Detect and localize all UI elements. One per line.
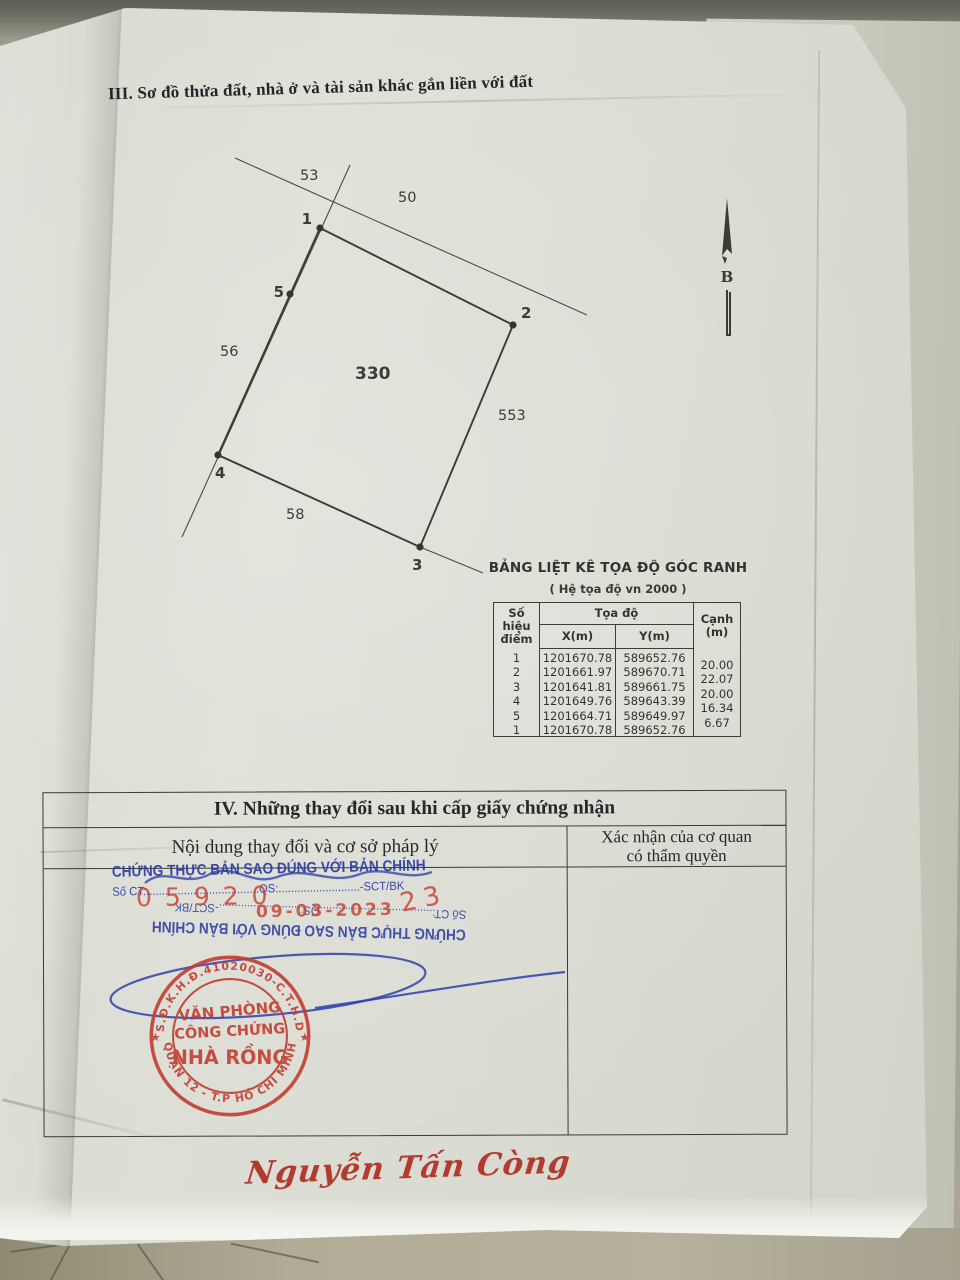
section4-col-right-header: Xác nhận của cơ quan có thẩm quyền [568,826,786,868]
notary-signature: Nguyễn Tấn Còng [244,1144,572,1191]
section4-col-right-line2: có thẩm quyền [627,846,727,865]
plot-diagram: 1 2 3 4 5 53 50 56 58 553 330 [100,140,620,610]
point-label-2: 2 [521,304,531,322]
stamp-center-line3: NHÀ RỒNG [172,1043,288,1069]
coord-table: Số hiệu điểm Tọa độ Cạnh (m) X(m) Y(m) 1… [493,602,741,737]
y-value: 589649.97 [616,709,693,723]
y-value: 589670.71 [616,665,693,679]
corner-point-3 [416,543,423,550]
edge-value: 22.07 [694,672,740,686]
x-value: 1201670.78 [540,723,615,737]
boundary-line-extended [182,165,350,537]
stamp-star-left: ★ [150,1030,160,1044]
section4-body-right [568,867,787,1135]
x-value: 1201661.97 [540,665,615,679]
north-arrow-icon: B [698,192,758,342]
x-value: 1201641.81 [540,680,615,694]
col-header-x: X(m) [540,625,616,649]
point-label-5: 5 [274,283,284,301]
corner-point-4 [214,451,221,458]
stamp-star-right: ★ [299,1030,309,1044]
col-header-point-line1: Số hiệu [494,607,539,633]
body-edge-values: 20.00 22.07 20.00 16.34 6.67 [694,649,740,737]
parcel-number: 330 [355,364,391,384]
point-id: 2 [494,665,539,679]
edge3-extension [420,547,483,573]
x-value: 1201670.78 [540,651,615,665]
section4-col-right-line1: Xác nhận của cơ quan [601,827,752,847]
point-id: 1 [494,651,539,665]
edge-value: 20.00 [694,658,740,672]
point-id: 3 [494,680,539,694]
handwriting-scribble [140,858,440,898]
y-value: 589643.39 [616,694,693,708]
point-id: 5 [494,709,539,723]
photo-of-land-certificate: III. Sơ đồ thửa đất, nhà ở và tài sản kh… [0,0,960,1280]
label-553: 553 [498,408,526,424]
col-header-coord: Tọa độ [540,603,694,625]
edge-value: 16.34 [694,701,740,715]
notary-round-stamp: S.Đ.K.H.Đ.41020030-C.T.H.D QUẬN 12 - T.P… [142,948,318,1124]
edge-value: 20.00 [694,687,740,701]
body-point-ids: 1 2 3 4 5 1 [494,649,540,737]
paper-crease-right [810,50,820,1230]
col-header-edge-line2: (m) [706,626,729,639]
col-header-edge: Cạnh (m) [694,603,740,649]
point-id: 4 [494,694,539,708]
coord-table-title: BẢNG LIỆT KÊ TỌA ĐỘ GÓC RANH [480,560,756,576]
y-value: 589661.75 [616,680,693,694]
label-50: 50 [398,190,416,206]
col-header-point-line2: điểm [501,633,533,646]
corner-point-1 [316,224,323,231]
point-label-4: 4 [215,464,225,482]
red-date-stamp: 09-03-2023 [256,900,395,922]
label-56: 56 [220,344,238,360]
col-header-y: Y(m) [616,625,694,649]
col-header-point: Số hiệu điểm [494,603,540,649]
point-label-3: 3 [412,556,422,574]
y-value: 589652.76 [616,723,693,737]
y-value: 589652.76 [616,651,693,665]
section4-title: IV. Những thay đổi sau khi cấp giấy chứn… [43,791,785,829]
x-value: 1201649.76 [540,694,615,708]
stamp-center-line1: VĂN PHÒNG [178,997,281,1025]
coord-table-subtitle: ( Hệ tọa độ vn 2000 ) [480,582,756,596]
point-label-1: 1 [302,210,312,228]
body-x-values: 1201670.78 1201661.97 1201641.81 1201649… [540,649,616,737]
label-58: 58 [286,507,304,523]
corner-point-2 [509,321,516,328]
north-letter: B [721,268,734,286]
body-y-values: 589652.76 589670.71 589661.75 589643.39 … [616,649,694,737]
edge-value: 6.67 [694,716,740,730]
document-paper: III. Sơ đồ thửa đất, nhà ở và tài sản kh… [0,0,960,1280]
corner-point-5 [286,290,293,297]
parcel-polygon [218,228,513,547]
label-53: 53 [300,168,318,184]
point-id: 1 [494,723,539,737]
x-value: 1201664.71 [540,709,615,723]
